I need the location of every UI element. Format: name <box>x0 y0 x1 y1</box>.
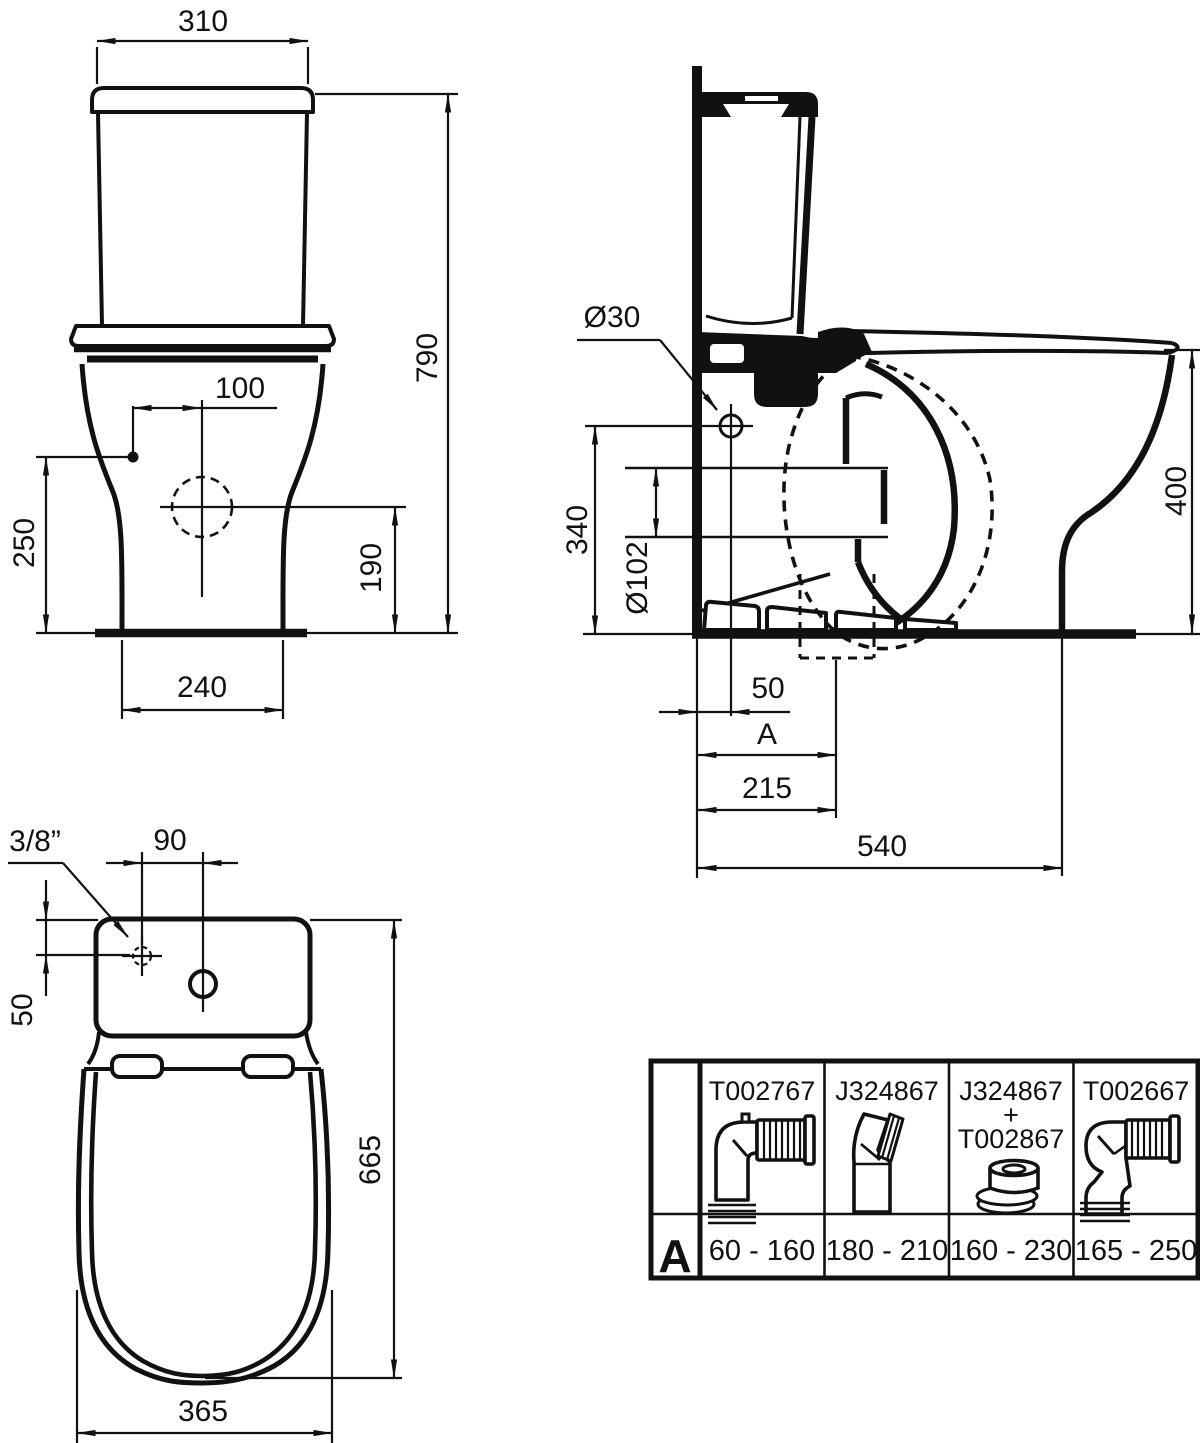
dim-rough-in-label: A <box>757 718 777 751</box>
dim-total-depth-label: 540 <box>857 830 907 863</box>
dim-hole-spacing-label: 90 <box>153 824 186 857</box>
dim-hole-setback-label: 50 <box>6 993 39 1026</box>
dim-supply-hole-offset-label: 100 <box>215 372 265 405</box>
table-row-label: A <box>658 1230 691 1282</box>
table-range-4: 165 - 250 <box>1075 1235 1198 1267</box>
technical-drawing-page: 310 790 100 250 190 240 <box>0 0 1200 1443</box>
dim-bowl-width-label: 365 <box>178 1395 228 1428</box>
table-code-2: J324867 <box>835 1076 939 1106</box>
background <box>0 0 1200 1443</box>
dim-outlet-height-label: 190 <box>355 543 388 593</box>
table-code-3c: T002867 <box>958 1124 1065 1154</box>
table-code-4: T002667 <box>1083 1076 1190 1106</box>
table-range-1: 60 - 160 <box>709 1235 815 1267</box>
dim-supply-hole-height-side-label: 340 <box>561 505 594 555</box>
dim-outlet-diameter-label: Ø102 <box>621 541 654 614</box>
table-code-1: T002767 <box>709 1076 816 1106</box>
dim-total-height-label: 790 <box>411 333 444 383</box>
dim-supply-hole-setback-label: 50 <box>751 672 784 705</box>
table-range-2: 180 - 210 <box>826 1235 949 1267</box>
dim-tank-width-label: 310 <box>178 5 228 38</box>
dim-supply-hole-diameter-label: Ø30 <box>584 301 641 334</box>
drawing-canvas: 310 790 100 250 190 240 <box>0 0 1200 1443</box>
table-range-3: 160 - 230 <box>950 1235 1073 1267</box>
dim-depth-top-label: 665 <box>354 1135 387 1185</box>
dim-base-width-label: 240 <box>177 671 227 704</box>
dim-inlet-thread-label: 3/8” <box>9 825 61 858</box>
dim-outlet-setback-label: 215 <box>742 772 792 805</box>
dim-supply-hole-height-label: 250 <box>8 518 41 568</box>
dim-bowl-height-label: 400 <box>1160 466 1193 516</box>
